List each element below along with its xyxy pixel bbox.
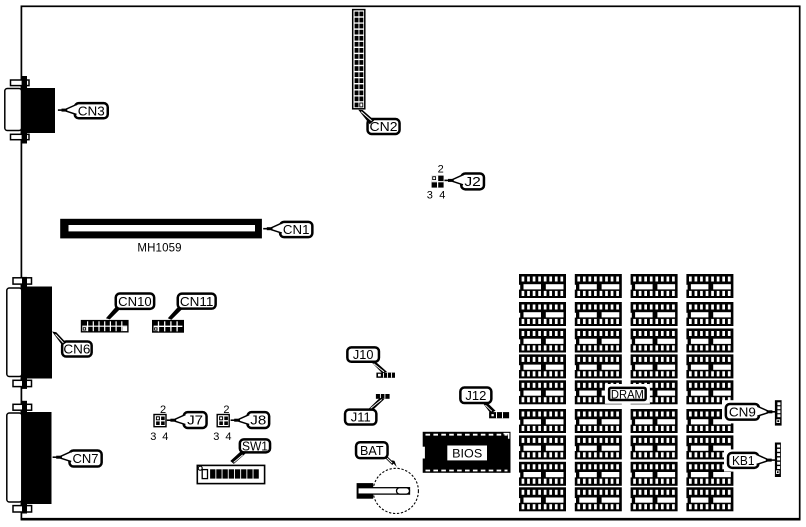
svg-text:4: 4	[439, 189, 445, 201]
svg-text:J8: J8	[250, 413, 266, 428]
svg-text:J11: J11	[351, 410, 371, 425]
svg-text:CN11: CN11	[180, 294, 214, 309]
svg-text:CN10: CN10	[118, 294, 152, 309]
svg-text:2: 2	[223, 404, 229, 416]
svg-text:J10: J10	[353, 347, 374, 362]
svg-text:J2: J2	[464, 174, 481, 189]
svg-text:CN7: CN7	[73, 451, 99, 466]
svg-text:3: 3	[213, 431, 219, 443]
svg-text:DRAM: DRAM	[611, 388, 644, 402]
svg-text:J12: J12	[465, 388, 486, 403]
svg-text:2: 2	[438, 164, 444, 176]
svg-text:J7: J7	[187, 413, 203, 428]
svg-text:2: 2	[160, 404, 166, 416]
svg-text:CN9: CN9	[729, 404, 756, 419]
svg-text:3: 3	[150, 431, 156, 443]
svg-text:SW1: SW1	[242, 438, 268, 453]
svg-text:CN3: CN3	[78, 103, 105, 118]
svg-text:KB1: KB1	[732, 453, 755, 468]
svg-text:CN6: CN6	[63, 342, 90, 357]
svg-text:CN1: CN1	[283, 222, 310, 237]
svg-text:CN2: CN2	[370, 119, 398, 134]
svg-text:BAT: BAT	[360, 443, 384, 458]
svg-text:BIOS: BIOS	[452, 446, 482, 460]
svg-text:4: 4	[225, 431, 231, 443]
svg-text:3: 3	[427, 189, 433, 201]
svg-text:MH1059: MH1059	[137, 243, 182, 255]
svg-text:4: 4	[162, 431, 168, 443]
